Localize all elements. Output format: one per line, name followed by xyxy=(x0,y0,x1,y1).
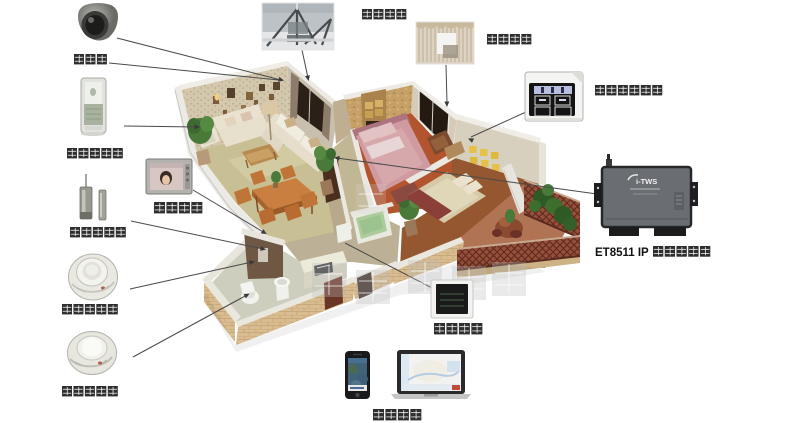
svg-text:ET8511 IP: ET8511 IP xyxy=(595,247,649,259)
svg-text:i-TWS: i-TWS xyxy=(636,177,657,186)
